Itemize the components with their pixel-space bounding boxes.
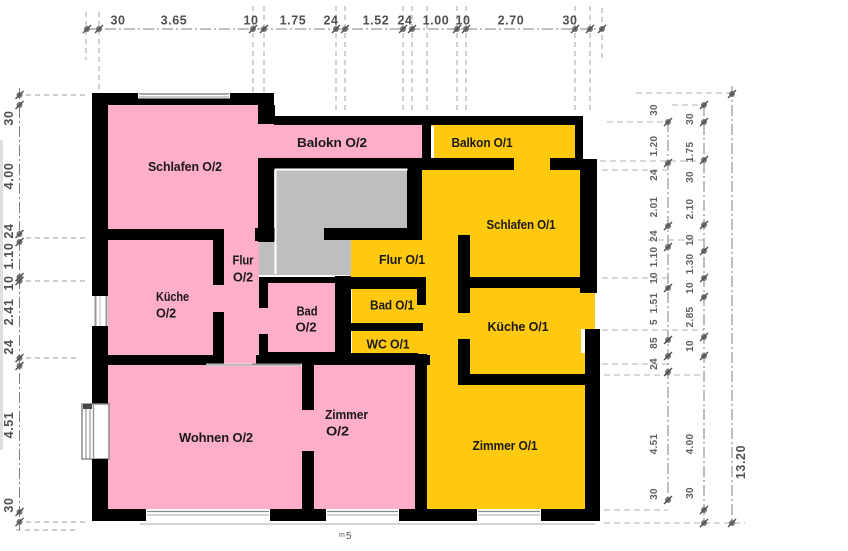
- svg-text:5: 5: [346, 531, 352, 542]
- svg-text:1.20: 1.20: [649, 136, 660, 157]
- svg-text:30: 30: [649, 488, 660, 500]
- svg-text:30: 30: [685, 113, 696, 125]
- svg-text:30: 30: [685, 171, 696, 183]
- svg-text:Schlafen O/2: Schlafen O/2: [148, 160, 222, 174]
- svg-text:1.51: 1.51: [649, 293, 660, 314]
- svg-text:30: 30: [685, 487, 696, 499]
- svg-text:Flur: Flur: [233, 254, 254, 268]
- svg-text:10: 10: [243, 14, 258, 28]
- svg-text:5: 5: [649, 319, 660, 325]
- svg-text:1.75: 1.75: [685, 142, 696, 163]
- svg-text:1.30: 1.30: [685, 254, 696, 275]
- svg-text:Bad: Bad: [297, 305, 318, 319]
- svg-text:4.51: 4.51: [2, 412, 16, 439]
- svg-text:30: 30: [649, 104, 660, 116]
- svg-text:2.85: 2.85: [685, 307, 696, 328]
- svg-text:Zimmer O/1: Zimmer O/1: [473, 439, 538, 453]
- svg-text:1.10: 1.10: [2, 243, 16, 270]
- svg-text:Bad O/1: Bad O/1: [370, 299, 414, 313]
- svg-text:24: 24: [649, 230, 660, 242]
- svg-text:1.00: 1.00: [423, 14, 450, 28]
- svg-text:2.70: 2.70: [498, 14, 525, 28]
- svg-text:2.01: 2.01: [649, 197, 660, 218]
- svg-text:10: 10: [2, 275, 16, 290]
- svg-text:10: 10: [685, 340, 696, 352]
- svg-text:O/2: O/2: [326, 425, 349, 439]
- svg-text:24: 24: [2, 339, 16, 354]
- svg-text:Zimmer: Zimmer: [325, 408, 368, 422]
- svg-text:4.00: 4.00: [685, 434, 696, 455]
- svg-text:m: m: [339, 532, 345, 539]
- svg-text:10: 10: [649, 272, 660, 284]
- svg-text:4.00: 4.00: [2, 163, 16, 190]
- svg-text:30: 30: [2, 110, 16, 125]
- svg-text:2.10: 2.10: [685, 199, 696, 220]
- svg-text:24: 24: [2, 223, 16, 238]
- svg-text:Balkon O/1: Balkon O/1: [452, 136, 513, 150]
- svg-text:30: 30: [562, 14, 577, 28]
- svg-text:Balokn O/2: Balokn O/2: [297, 136, 367, 150]
- svg-text:1.75: 1.75: [280, 14, 307, 28]
- svg-text:2.41: 2.41: [2, 299, 16, 326]
- svg-text:13.20: 13.20: [734, 445, 748, 479]
- svg-text:10: 10: [455, 14, 470, 28]
- svg-text:24: 24: [649, 169, 660, 181]
- svg-text:24: 24: [397, 14, 412, 28]
- svg-text:3.65: 3.65: [161, 14, 188, 28]
- svg-text:Wohnen O/2: Wohnen O/2: [179, 431, 253, 445]
- svg-text:1.10: 1.10: [649, 247, 660, 268]
- svg-text:Küche: Küche: [156, 290, 189, 304]
- svg-text:24: 24: [323, 14, 338, 28]
- svg-text:10: 10: [685, 234, 696, 246]
- svg-text:WC O/1: WC O/1: [367, 338, 410, 352]
- svg-text:30: 30: [110, 14, 125, 28]
- svg-text:85: 85: [649, 337, 660, 349]
- svg-text:1.52: 1.52: [363, 14, 390, 28]
- svg-text:O/2: O/2: [233, 271, 253, 285]
- svg-text:24: 24: [649, 358, 660, 370]
- svg-text:10: 10: [685, 282, 696, 294]
- svg-text:Schlafen O/1: Schlafen O/1: [487, 218, 556, 232]
- svg-text:30: 30: [2, 497, 16, 512]
- svg-text:4.51: 4.51: [649, 434, 660, 455]
- svg-text:O/2: O/2: [296, 321, 317, 335]
- svg-text:Flur O/1: Flur O/1: [379, 253, 425, 267]
- svg-text:Küche O/1: Küche O/1: [488, 320, 549, 334]
- svg-text:O/2: O/2: [156, 307, 176, 321]
